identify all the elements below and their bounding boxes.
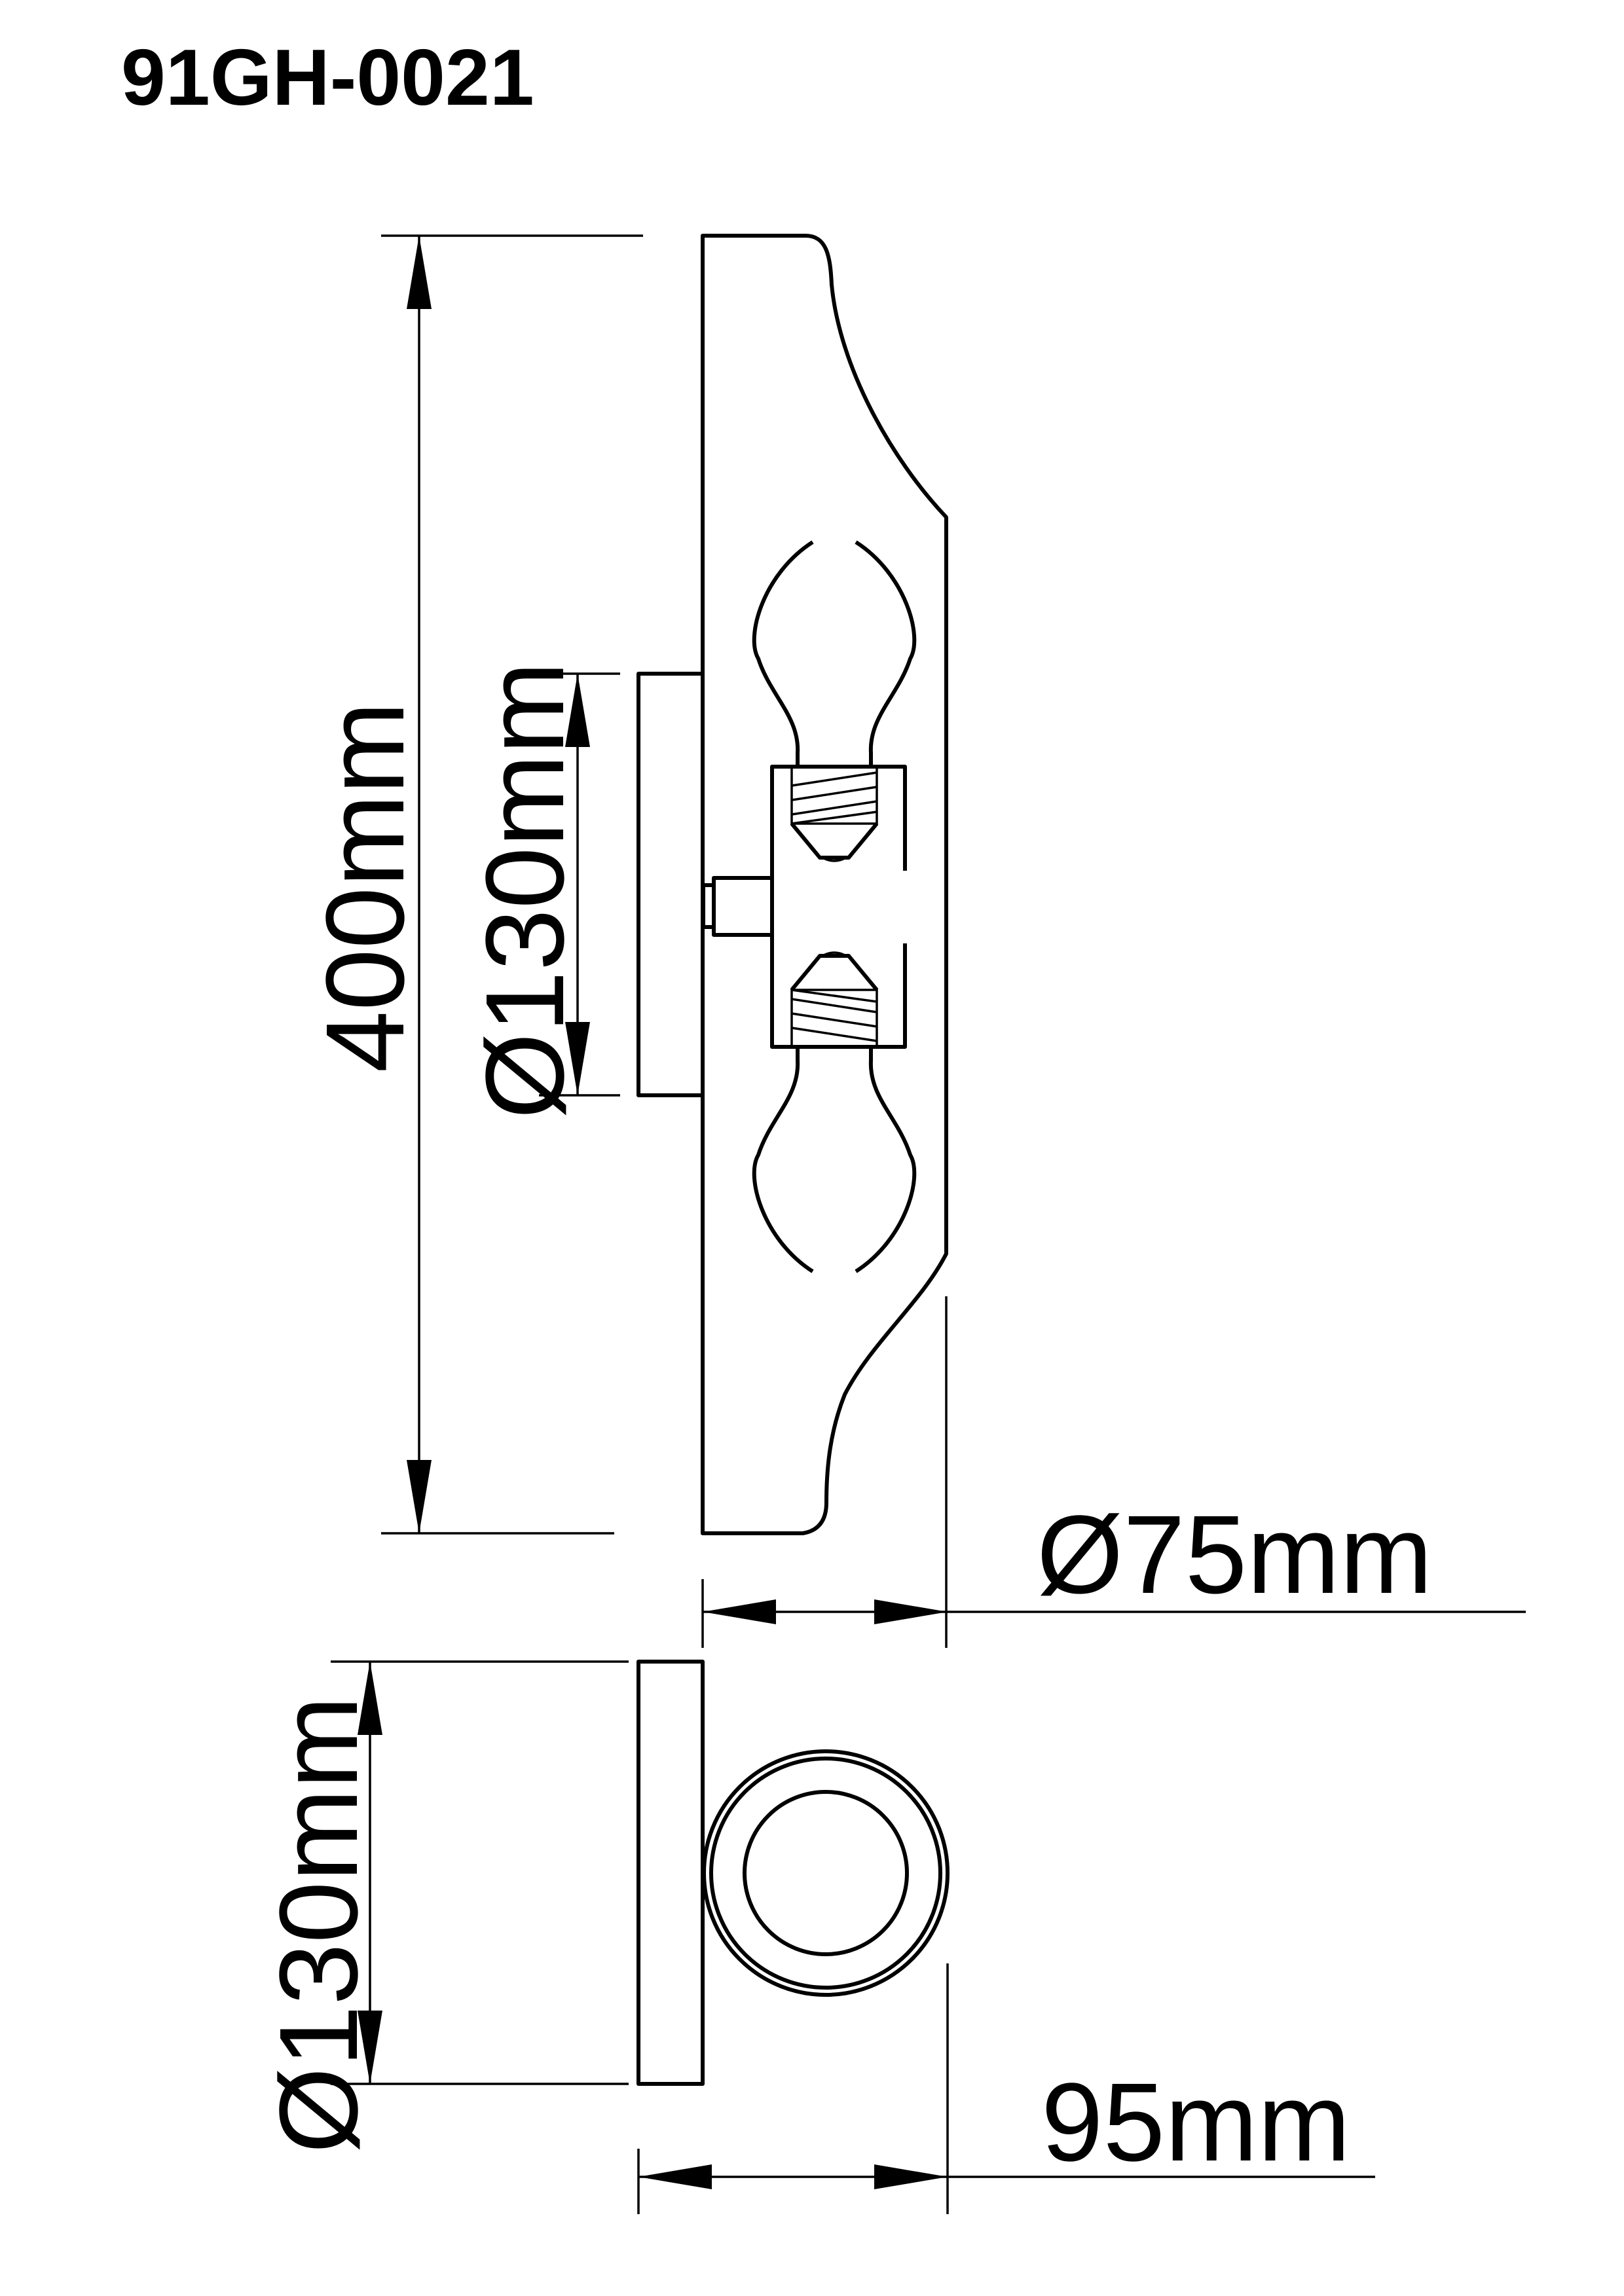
dimension-text-canopy-dia: Ø130mm (463, 661, 587, 1119)
dimension-text-plate-dia: Ø130mm (257, 1696, 381, 2153)
dimension-text-body-dia: Ø75mm (1037, 1493, 1433, 1617)
product-code-label: 91GH-0021 (121, 33, 534, 122)
dimension-text-depth: 95mm (1041, 2060, 1350, 2185)
title-block: 91GH-0021 (121, 33, 534, 122)
dimension-text-height: 400mm (303, 702, 428, 1073)
technical-drawing: 91GH-0021 (0, 0, 1624, 2296)
drawing-sheet: 91GH-0021 (0, 0, 1624, 2296)
